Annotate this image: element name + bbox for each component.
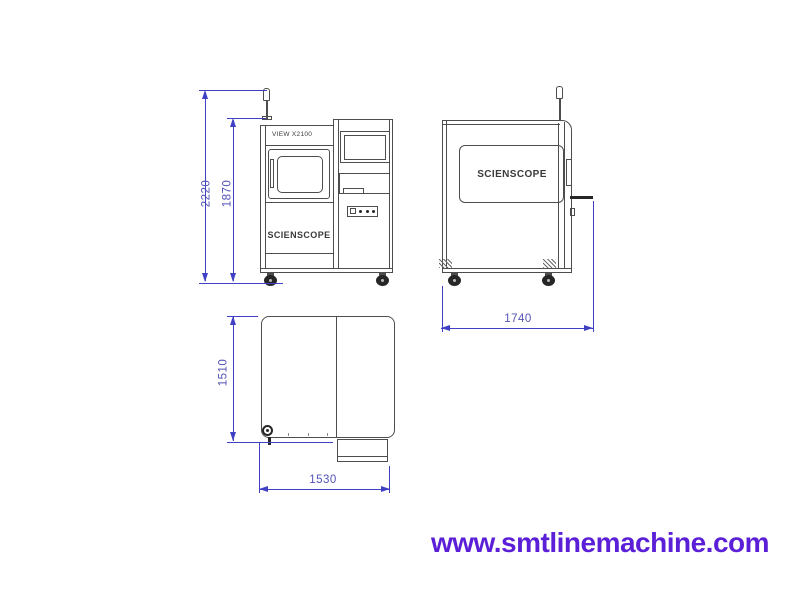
dim-extension-line — [442, 286, 443, 332]
front-brand-logo: SCIENSCOPE — [265, 230, 333, 240]
dim-label-side-width: 1740 — [496, 313, 540, 326]
dim-label-top-width: 1530 — [301, 474, 345, 487]
top-outline — [261, 316, 395, 438]
front-base-strip — [260, 268, 393, 273]
dim-arrow — [230, 316, 236, 325]
viewing-window-glass — [277, 156, 323, 193]
signal-lamp-top-center — [266, 429, 269, 432]
dim-label-overall-height: 2220 — [201, 172, 214, 216]
dim-label-cabinet-height: 1870 — [222, 172, 235, 216]
tower-left-line — [338, 119, 339, 269]
caster-wheel — [541, 272, 557, 287]
front-top-strip-line — [265, 145, 334, 146]
hinge-stop — [268, 437, 271, 445]
dim-extension-line — [199, 90, 267, 91]
side-back-edge-line — [446, 120, 447, 268]
panel-tick — [327, 433, 328, 436]
dim-arrow — [230, 273, 236, 282]
front-door-line — [265, 202, 334, 203]
leveling-foot-pad — [439, 259, 452, 268]
conveyor-rail-shelf — [570, 196, 593, 199]
dim-extension-line — [227, 118, 266, 119]
dim-extension-line — [389, 466, 390, 493]
dim-arrow — [230, 118, 236, 127]
leveling-foot-pad — [543, 259, 556, 268]
caster-wheel — [263, 272, 279, 287]
dim-arrow — [202, 90, 208, 99]
dim-line-side-width — [441, 328, 593, 329]
dim-label-top-depth: 1510 — [218, 351, 231, 395]
side-top-inner-line — [442, 124, 560, 125]
panel-tick — [308, 433, 309, 436]
website-watermark: www.smtlinemachine.com — [420, 527, 780, 559]
side-front-band-line — [564, 122, 565, 268]
front-lower-line — [265, 253, 334, 254]
dim-arrow — [230, 432, 236, 441]
model-label: VIEW X2100 — [272, 131, 312, 138]
dim-line-top-depth — [233, 317, 234, 441]
control-panel-button — [372, 210, 375, 213]
control-panel-button — [359, 210, 362, 213]
top-divider-line — [336, 316, 337, 437]
dim-arrow — [259, 486, 268, 492]
dim-extension-line — [227, 316, 258, 317]
control-panel-button — [366, 210, 369, 213]
signal-lamp-pole — [559, 98, 561, 121]
control-panel-switch — [350, 208, 356, 214]
front-left-edge-line — [265, 125, 266, 269]
conveyor-exit-port — [337, 439, 388, 462]
caster-wheel — [447, 272, 463, 287]
window-hinge-strip — [270, 159, 274, 188]
tray-handle — [343, 188, 364, 194]
side-brand-logo: SCIENSCOPE — [462, 169, 562, 180]
side-latch — [570, 208, 575, 216]
caster-wheel — [375, 272, 391, 287]
dim-arrow — [584, 325, 593, 331]
dim-extension-line — [227, 442, 333, 443]
dim-extension-line — [199, 283, 283, 284]
machine-dimension-drawing: VIEW X2100 SCIENSCOPE — [0, 0, 800, 600]
panel-tick — [288, 433, 289, 436]
conveyor-exit-inner-line — [338, 456, 387, 457]
dim-extension-line — [593, 201, 594, 332]
dim-extension-line — [259, 443, 260, 493]
monitor-screen — [344, 135, 386, 160]
door-handle — [566, 159, 572, 186]
dim-arrow — [202, 273, 208, 282]
dim-line-top-width — [259, 489, 390, 490]
